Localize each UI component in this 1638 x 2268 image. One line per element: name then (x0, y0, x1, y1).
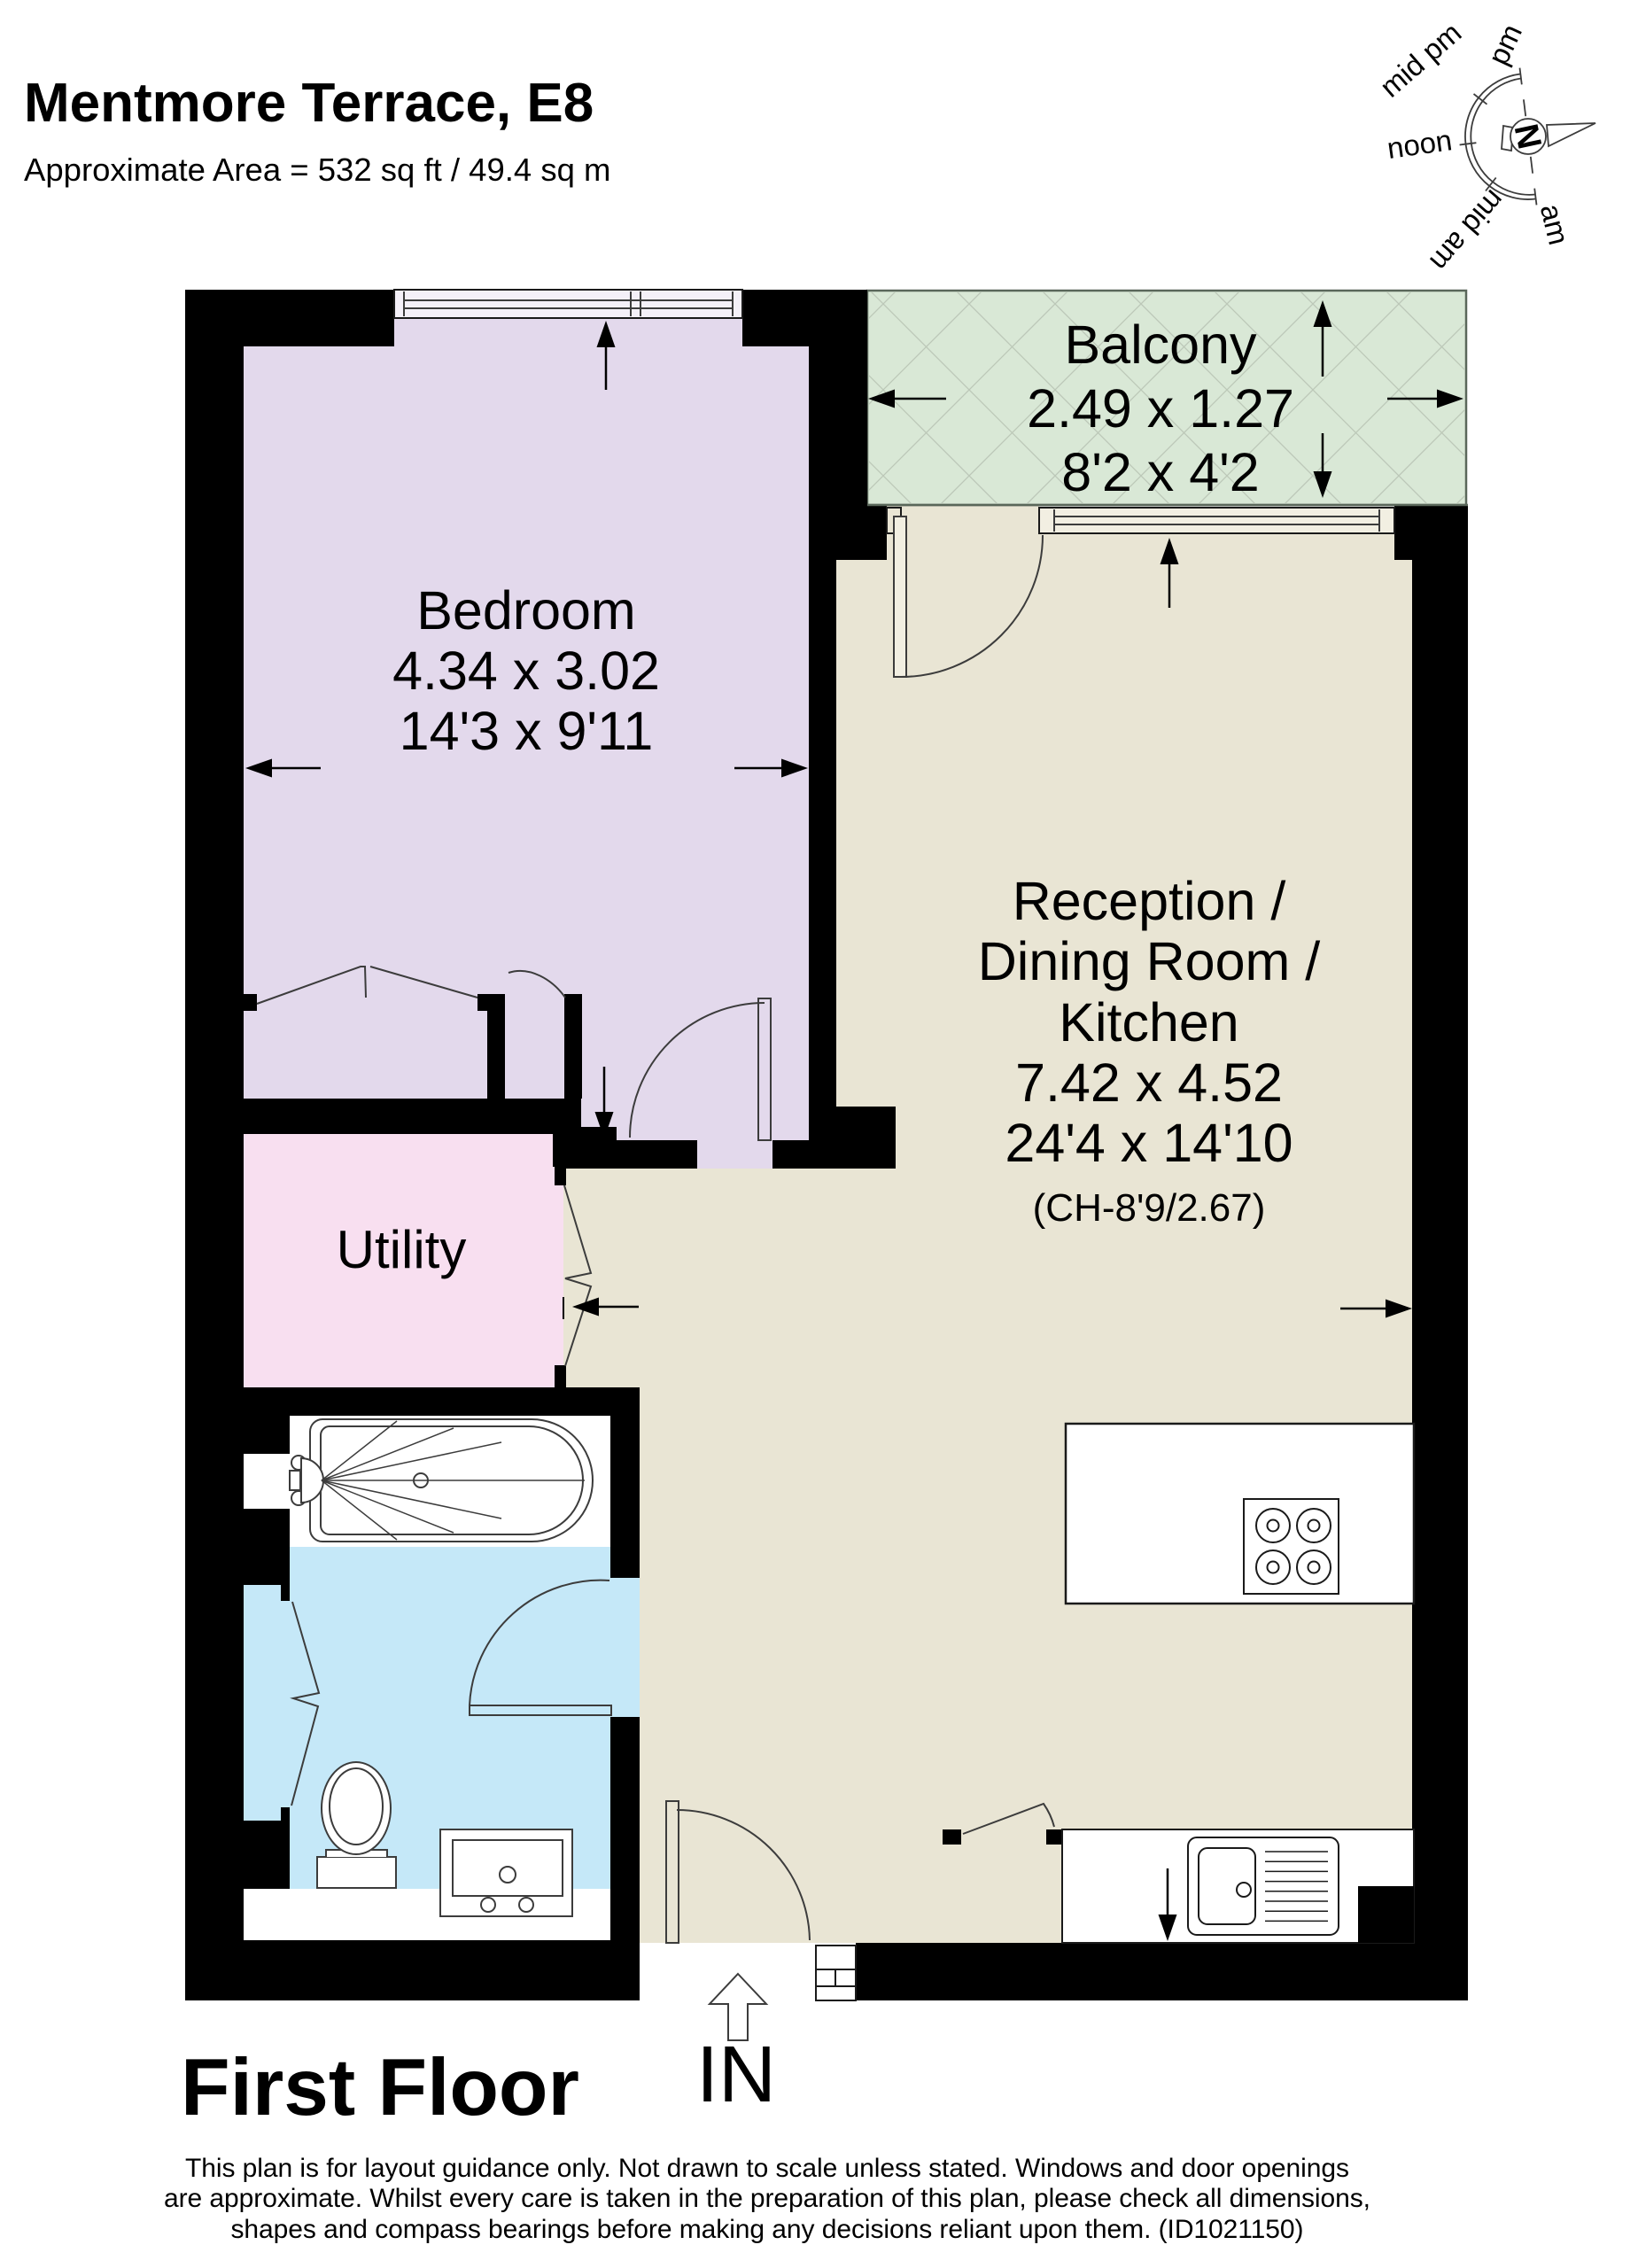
svg-text:8'2 x 4'2: 8'2 x 4'2 (1061, 442, 1259, 502)
svg-text:This plan is for layout guidan: This plan is for layout guidance only. N… (185, 2154, 1349, 2183)
svg-text:Approximate Area = 532 sq ft /: Approximate Area = 532 sq ft / 49.4 sq m (24, 151, 610, 188)
svg-text:shapes and compass bearings be: shapes and compass bearings before makin… (231, 2215, 1304, 2244)
svg-text:2.49 x 1.27: 2.49 x 1.27 (1027, 378, 1294, 439)
svg-text:Utility: Utility (337, 1220, 467, 1279)
svg-text:24'4 x 14'10: 24'4 x 14'10 (1005, 1113, 1293, 1173)
svg-text:4.34 x 3.02: 4.34 x 3.02 (392, 641, 660, 701)
svg-text:Bedroom: Bedroom (416, 580, 636, 641)
svg-text:Mentmore Terrace, E8: Mentmore Terrace, E8 (24, 73, 594, 134)
svg-text:Dining Room /: Dining Room / (978, 931, 1321, 991)
svg-text:7.42 x 4.52: 7.42 x 4.52 (1015, 1052, 1283, 1113)
svg-text:Balcony: Balcony (1064, 315, 1257, 375)
svg-text:IN: IN (696, 2031, 776, 2119)
svg-text:Kitchen: Kitchen (1059, 992, 1238, 1052)
svg-text:First Floor: First Floor (181, 2043, 579, 2132)
svg-text:are approximate. Whilst every: are approximate. Whilst every care is ta… (164, 2184, 1370, 2213)
svg-text:Reception /: Reception / (1013, 871, 1286, 931)
svg-text:14'3 x 9'11: 14'3 x 9'11 (400, 701, 654, 761)
svg-text:(CH-8'9/2.67): (CH-8'9/2.67) (1033, 1186, 1266, 1230)
